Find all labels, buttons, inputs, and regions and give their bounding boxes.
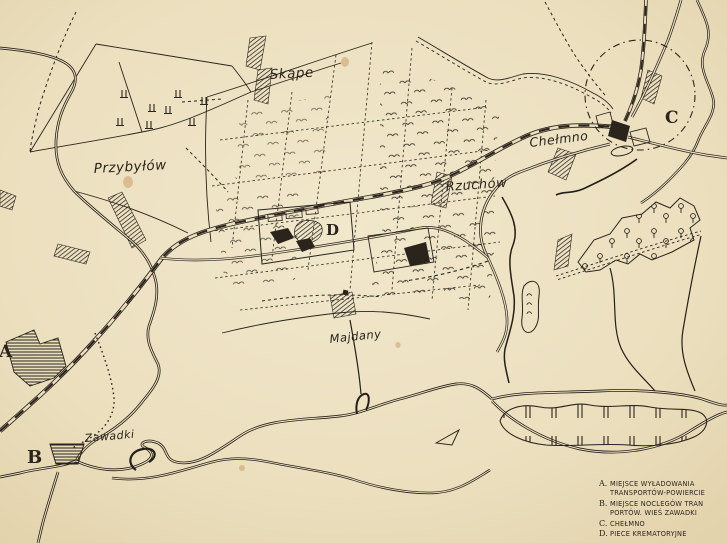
legend-key: B. — [599, 499, 610, 508]
legend-text: CHEŁMNO — [610, 520, 645, 529]
legend-text: MIEJSCE NOCLEGÓW TRAN — [610, 500, 703, 509]
legend-row-b: B. MIEJSCE NOCLEGÓW TRAN — [599, 499, 727, 509]
legend-row-c: C. CHEŁMNO — [599, 519, 727, 529]
legend-text: PORTÓW. WIEŚ ZAWADKI — [610, 509, 697, 518]
marker-b: B — [27, 447, 42, 468]
legend-row-a: A. MIEJSCE WYŁADOWANIA — [599, 479, 727, 489]
legend: A. MIEJSCE WYŁADOWANIA TRANSPORTÓW-POWIE… — [599, 479, 727, 539]
legend-key: D. — [599, 529, 610, 538]
legend-text: TRANSPORTÓW-POWIERCIE — [610, 489, 705, 498]
paper-background — [0, 0, 727, 543]
building-zawadki-b — [50, 444, 84, 464]
marker-d: D — [326, 221, 339, 239]
marker-a: A — [0, 342, 13, 362]
legend-key: C. — [599, 519, 610, 528]
label-skape: Skąpe — [269, 65, 314, 83]
historical-map: Skąpe Przybyłów Chełmno Rzuchów Majdany … — [0, 0, 727, 543]
legend-row-a2: TRANSPORTÓW-POWIERCIE — [599, 489, 727, 498]
legend-text: MIEJSCE WYŁADOWANIA — [610, 480, 695, 489]
river-island — [500, 404, 707, 446]
legend-text: PIECE KREMATORYJNE — [610, 530, 687, 539]
legend-row-b2: PORTÓW. WIEŚ ZAWADKI — [599, 509, 727, 518]
legend-row-d: D. PIECE KREMATORYJNE — [599, 529, 727, 539]
marker-c: C — [665, 108, 679, 128]
legend-key: A. — [599, 479, 610, 488]
map-canvas: Skąpe Przybyłów Chełmno Rzuchów Majdany … — [0, 0, 727, 543]
